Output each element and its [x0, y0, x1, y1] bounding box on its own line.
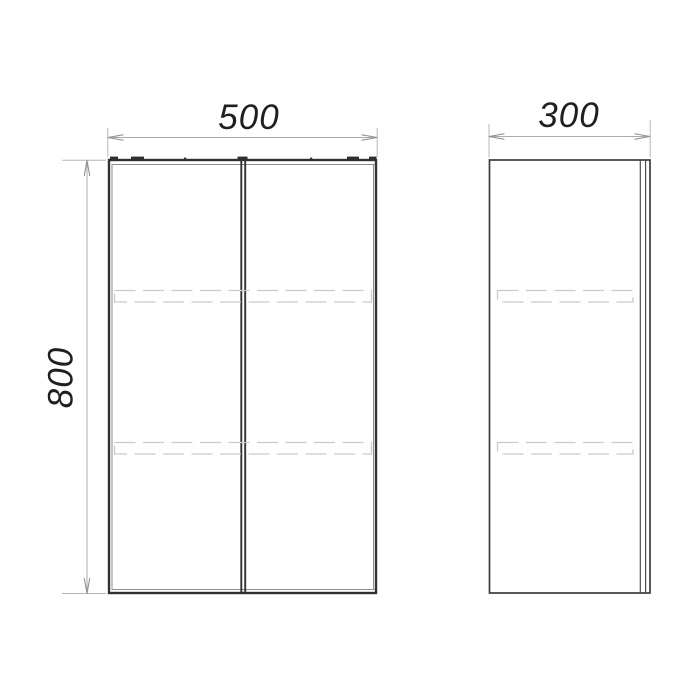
dim-depth-label: 300: [538, 96, 599, 135]
dimension-height: 800: [42, 160, 107, 593]
dimension-width: 500: [108, 98, 377, 157]
front-view-outline: [109, 160, 376, 593]
dim-height-label: 800: [42, 347, 81, 408]
top-fitting-mark: [369, 157, 377, 160]
dimension-depth: 300: [489, 96, 650, 157]
top-fitting-mark: [131, 157, 144, 160]
top-fitting-dot: [310, 158, 312, 160]
cabinet-dimension-drawing: 500 300 800: [0, 0, 700, 700]
side-view: [490, 160, 651, 593]
technical-drawing-canvas: 500 300 800: [0, 0, 700, 700]
dim-width-label: 500: [218, 98, 279, 137]
top-fitting-mark: [347, 157, 359, 160]
side-view-outline: [490, 160, 651, 593]
top-fitting-mark: [238, 157, 248, 160]
front-view: [109, 157, 377, 593]
top-fitting-mark: [110, 157, 118, 160]
top-fitting-dot: [184, 158, 186, 160]
